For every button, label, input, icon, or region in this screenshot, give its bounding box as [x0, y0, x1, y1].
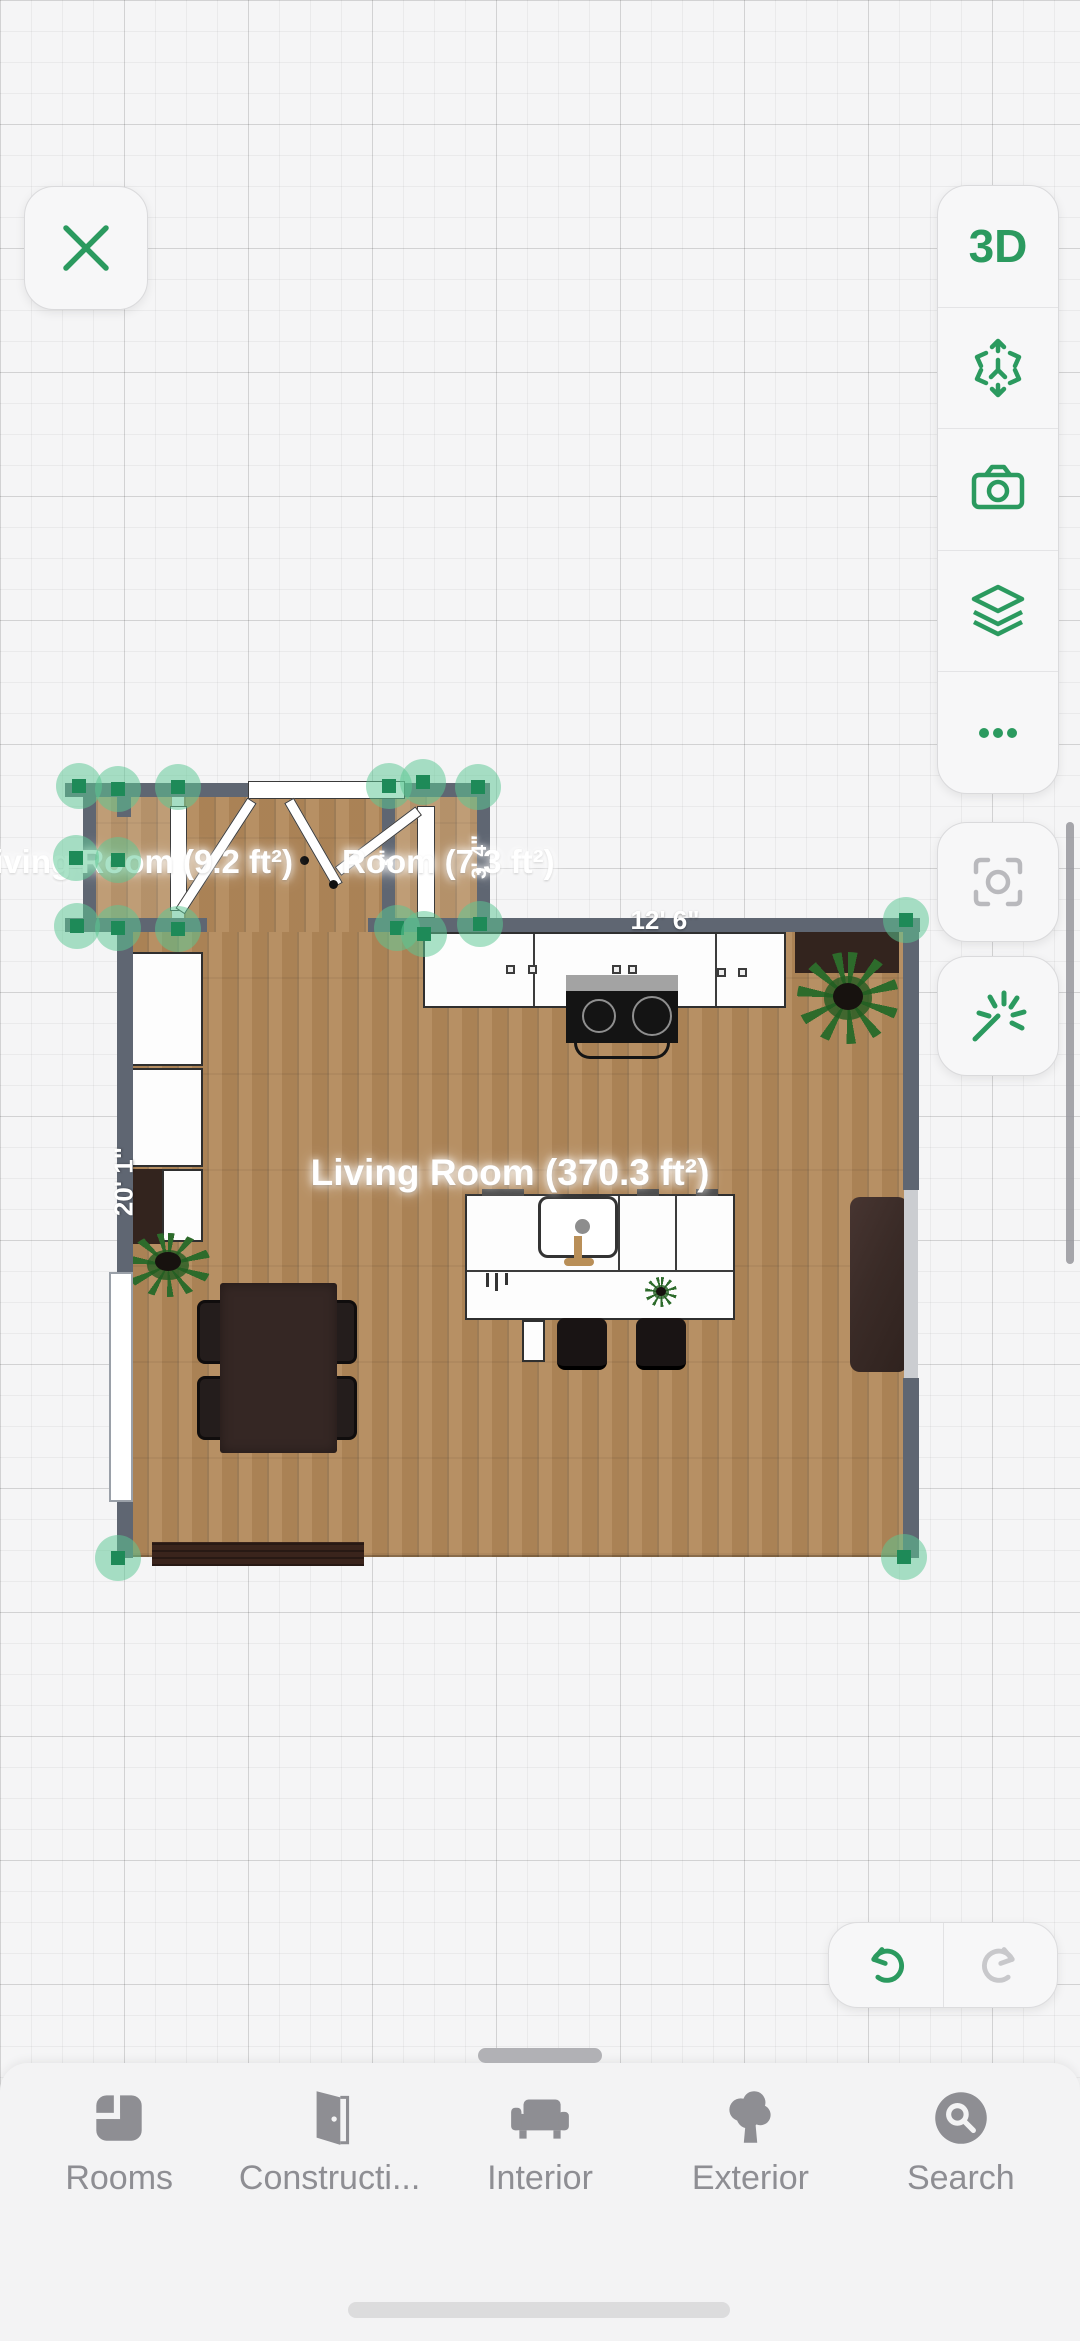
selection-handle[interactable] — [155, 906, 201, 952]
interior-sofa-icon — [507, 2085, 573, 2151]
drain — [575, 1219, 590, 1234]
screenshot-focus-icon — [966, 850, 1030, 914]
selection-handle[interactable] — [95, 837, 141, 883]
vertical-scrollbar[interactable] — [1066, 822, 1074, 1264]
nav-item-interior[interactable]: Interior — [435, 2085, 645, 2235]
selection-handle[interactable] — [455, 764, 501, 810]
construction-door-icon — [297, 2085, 363, 2151]
wall-main-right-lower[interactable] — [903, 1378, 919, 1558]
close-button[interactable] — [24, 186, 148, 310]
selection-handle[interactable] — [883, 897, 929, 943]
wall-main-right[interactable] — [903, 918, 919, 1190]
dimension-right-room-inner: 3" — [377, 834, 399, 884]
undo-button[interactable] — [829, 1923, 943, 2007]
rooms-icon — [86, 2085, 152, 2151]
view-toolbar: 3D — [937, 185, 1059, 794]
bar-stool[interactable] — [636, 1318, 686, 1370]
dimension-right-room: 3' 4" — [468, 827, 492, 887]
selection-handle[interactable] — [457, 901, 503, 947]
nav-label: Constructi... — [239, 2159, 420, 2198]
history-controls — [828, 1922, 1058, 2008]
selection-handle[interactable] — [95, 905, 141, 951]
door-pivot — [300, 856, 309, 865]
window-right[interactable] — [904, 1190, 918, 1378]
door-pivot — [329, 880, 338, 889]
room-label-small-left: Living Room (9.2 ft²) — [0, 843, 293, 881]
faucet-handle[interactable] — [564, 1258, 594, 1266]
side-cabinet[interactable] — [162, 1169, 203, 1242]
window-left[interactable] — [109, 1272, 133, 1502]
floor-planner-app: Living Room (9.2 ft²) Room (7.3 ft²) Liv… — [0, 0, 1080, 2341]
nav-item-search[interactable]: Search — [856, 2085, 1066, 2235]
bar-stool[interactable] — [557, 1318, 607, 1370]
bottom-nav: Rooms Constructi... Interior — [14, 2085, 1066, 2235]
home-indicator[interactable] — [348, 2302, 730, 2318]
ar-view-button[interactable] — [938, 307, 1058, 429]
island-trash[interactable] — [522, 1320, 545, 1362]
dimension-top-wall: 12' 6" — [600, 905, 730, 936]
auto-design-button[interactable] — [937, 956, 1059, 1076]
selection-handle[interactable] — [54, 903, 100, 949]
layers-button[interactable] — [938, 550, 1058, 672]
more-ellipsis-icon — [966, 701, 1030, 765]
close-icon — [54, 216, 118, 280]
nav-item-construction[interactable]: Constructi... — [224, 2085, 434, 2235]
floor-plant[interactable] — [125, 1233, 211, 1297]
fridge[interactable] — [130, 952, 203, 1066]
selection-handle[interactable] — [401, 911, 447, 957]
burner — [582, 999, 616, 1033]
more-button[interactable] — [938, 671, 1058, 793]
stove[interactable] — [566, 975, 678, 1059]
redo-button[interactable] — [943, 1923, 1058, 2007]
view-3d-label: 3D — [969, 219, 1028, 273]
camera-icon — [966, 457, 1030, 521]
cutlery[interactable] — [486, 1273, 512, 1293]
tv-console[interactable] — [152, 1542, 364, 1566]
burner — [632, 996, 672, 1036]
sofa[interactable] — [850, 1197, 908, 1372]
layers-icon — [966, 579, 1030, 643]
selection-handle[interactable] — [95, 1535, 141, 1581]
room-label-main: Living Room (370.3 ft²) — [280, 1152, 740, 1194]
nav-label: Interior — [487, 2159, 593, 2198]
magic-wand-icon — [966, 984, 1030, 1048]
appliance-cabinet[interactable] — [130, 1068, 203, 1167]
view-3d-button[interactable]: 3D — [938, 186, 1058, 307]
dimension-left-wall: 20' 1" — [109, 1122, 140, 1242]
island-plant[interactable] — [645, 1277, 677, 1307]
selection-handle[interactable] — [95, 766, 141, 812]
selection-handle[interactable] — [155, 764, 201, 810]
snapshot-button[interactable] — [938, 428, 1058, 550]
nav-item-exterior[interactable]: Exterior — [645, 2085, 855, 2235]
nav-label: Rooms — [65, 2159, 173, 2198]
room-label-small-right: Room (7.3 ft²) — [342, 843, 555, 881]
nav-item-rooms[interactable]: Rooms — [14, 2085, 224, 2235]
nav-label: Exterior — [692, 2159, 809, 2198]
corner-plant[interactable] — [797, 952, 899, 1044]
sheet-drag-handle[interactable] — [478, 2048, 602, 2063]
dining-table[interactable] — [220, 1283, 337, 1453]
nav-label: Search — [907, 2159, 1015, 2198]
undo-icon — [860, 1939, 912, 1991]
selection-handle[interactable] — [881, 1534, 927, 1580]
search-icon — [928, 2085, 994, 2151]
redo-icon — [974, 1939, 1026, 1991]
stove-handle — [574, 1043, 670, 1059]
exterior-tree-icon — [717, 2085, 783, 2151]
selection-handle[interactable] — [400, 759, 446, 805]
ar-move-icon — [966, 336, 1030, 400]
selection-handle[interactable] — [53, 835, 99, 881]
screenshot-button[interactable] — [937, 822, 1059, 942]
